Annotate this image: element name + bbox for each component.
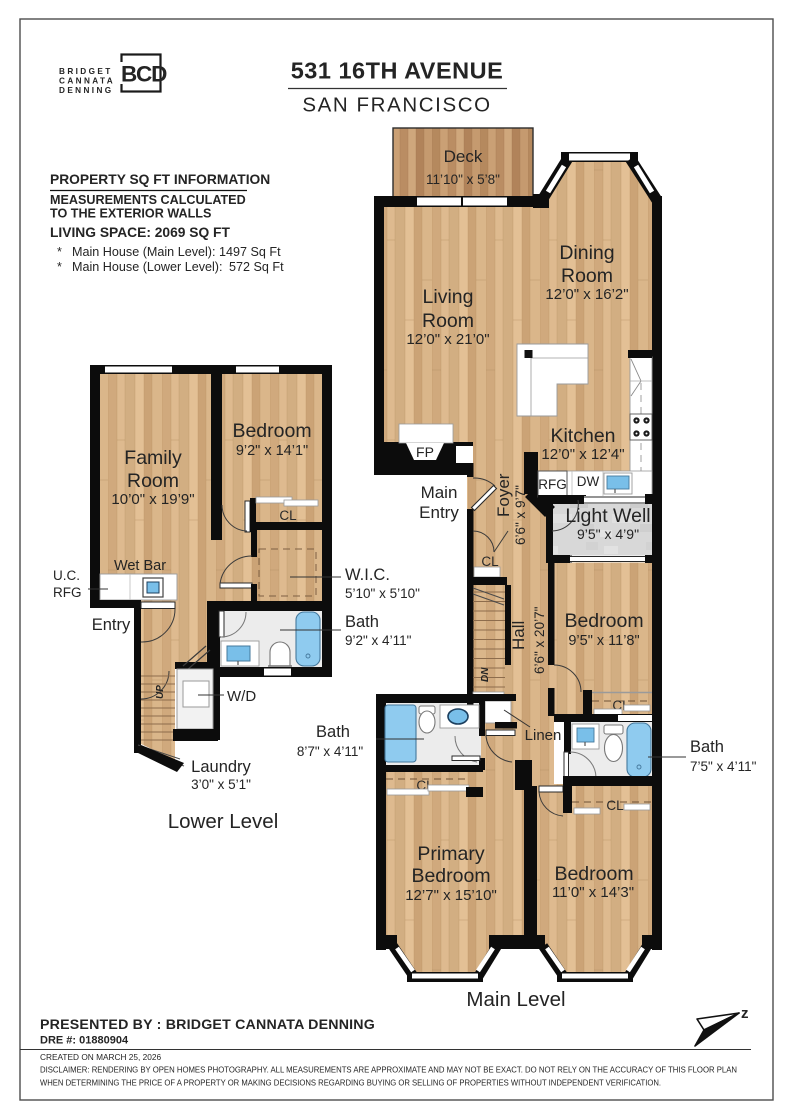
svg-text:*: * bbox=[57, 245, 62, 259]
svg-text:SAN FRANCISCO: SAN FRANCISCO bbox=[302, 94, 491, 117]
svg-text:DISCLAIMER: RENDERING BY OPEN: DISCLAIMER: RENDERING BY OPEN HOMES PHOT… bbox=[40, 1065, 737, 1075]
svg-text:12’0" x 21’0": 12’0" x 21’0" bbox=[406, 331, 489, 348]
svg-text:CANNATA: CANNATA bbox=[59, 77, 115, 86]
svg-text:PRESENTED BY : BRIDGET CANNATA: PRESENTED BY : BRIDGET CANNATA DENNING bbox=[40, 1017, 375, 1033]
svg-text:1497 Sq Ft: 1497 Sq Ft bbox=[219, 245, 281, 259]
svg-text:Linen: Linen bbox=[525, 727, 562, 744]
svg-text:10’0" x 19’9": 10’0" x 19’9" bbox=[111, 491, 194, 508]
svg-text:Laundry: Laundry bbox=[191, 758, 251, 776]
svg-text:BRIDGET: BRIDGET bbox=[59, 67, 113, 76]
svg-text:Room: Room bbox=[561, 265, 613, 287]
svg-text:RFG: RFG bbox=[538, 477, 567, 492]
svg-text:CREATED ON MARCH 25, 2026: CREATED ON MARCH 25, 2026 bbox=[40, 1052, 161, 1062]
svg-text:MEASUREMENTS CALCULATED: MEASUREMENTS CALCULATED bbox=[50, 193, 246, 207]
svg-text:Wet Bar: Wet Bar bbox=[114, 558, 166, 574]
svg-text:Kitchen: Kitchen bbox=[550, 425, 615, 447]
svg-text:572 Sq Ft: 572 Sq Ft bbox=[229, 260, 284, 274]
svg-text:DENNING: DENNING bbox=[59, 86, 114, 95]
svg-text:7’5" x 4’11": 7’5" x 4’11" bbox=[690, 759, 757, 774]
svg-text:Bedroom: Bedroom bbox=[411, 865, 490, 887]
svg-text:Bath: Bath bbox=[345, 613, 379, 631]
svg-text:TO THE EXTERIOR WALLS: TO THE EXTERIOR WALLS bbox=[50, 207, 211, 221]
svg-text:Bedroom: Bedroom bbox=[232, 420, 311, 442]
svg-text:CL: CL bbox=[279, 508, 297, 523]
svg-text:Main House (Main Level):: Main House (Main Level): bbox=[72, 245, 216, 259]
svg-text:PROPERTY SQ FT INFORMATION: PROPERTY SQ FT INFORMATION bbox=[50, 172, 270, 187]
svg-text:Living: Living bbox=[423, 286, 474, 308]
svg-text:W.I.C.: W.I.C. bbox=[345, 566, 390, 584]
svg-text:Family: Family bbox=[124, 447, 182, 469]
svg-text:Bedroom: Bedroom bbox=[564, 610, 643, 632]
svg-text:6’6" x 9’7": 6’6" x 9’7" bbox=[513, 485, 528, 545]
svg-text:Main: Main bbox=[421, 483, 458, 502]
svg-text:Deck: Deck bbox=[444, 147, 483, 166]
svg-text:11’10" x 5’8": 11’10" x 5’8" bbox=[426, 172, 500, 187]
svg-text:6’6" x 20’7": 6’6" x 20’7" bbox=[532, 606, 547, 674]
svg-text:WHEN DETERMINING THE PRICE OF: WHEN DETERMINING THE PRICE OF A PROPERTY… bbox=[40, 1078, 661, 1088]
svg-text:5’10" x 5’10": 5’10" x 5’10" bbox=[345, 586, 420, 601]
svg-text:DW: DW bbox=[577, 474, 600, 489]
svg-text:Dining: Dining bbox=[559, 242, 614, 264]
svg-text:BCD: BCD bbox=[121, 62, 167, 87]
svg-text:DN: DN bbox=[480, 667, 491, 682]
svg-text:9’5" x 11’8": 9’5" x 11’8" bbox=[568, 633, 639, 649]
svg-text:Lower Level: Lower Level bbox=[168, 810, 279, 833]
svg-text:9’5" x 4’9": 9’5" x 4’9" bbox=[577, 526, 639, 542]
svg-text:9’2" x 4’11": 9’2" x 4’11" bbox=[345, 633, 412, 648]
svg-text:*: * bbox=[57, 260, 62, 274]
svg-text:Primary: Primary bbox=[417, 843, 484, 865]
svg-text:Light Well: Light Well bbox=[565, 505, 650, 527]
svg-text:Bath: Bath bbox=[316, 723, 350, 741]
svg-text:W/D: W/D bbox=[227, 688, 256, 705]
svg-text:RFG: RFG bbox=[53, 585, 82, 600]
svg-text:DRE #: 01880904: DRE #: 01880904 bbox=[40, 1035, 129, 1047]
svg-text:Main Level: Main Level bbox=[466, 988, 565, 1011]
svg-text:Bath: Bath bbox=[690, 738, 724, 756]
svg-text:Bedroom: Bedroom bbox=[554, 863, 633, 885]
svg-text:11’0" x 14’3": 11’0" x 14’3" bbox=[552, 884, 634, 901]
svg-text:UP: UP bbox=[155, 685, 166, 699]
svg-text:Hall: Hall bbox=[509, 621, 528, 650]
svg-text:Entry: Entry bbox=[92, 616, 131, 634]
svg-text:12’0" x 16’2": 12’0" x 16’2" bbox=[545, 286, 628, 303]
svg-text:12’7" x 15’10": 12’7" x 15’10" bbox=[405, 887, 497, 904]
svg-text:Main House (Lower Level):: Main House (Lower Level): bbox=[72, 260, 223, 274]
svg-text:CL: CL bbox=[606, 798, 624, 813]
svg-text:12’0" x 12’4": 12’0" x 12’4" bbox=[541, 446, 624, 463]
svg-text:8’7" x 4’11": 8’7" x 4’11" bbox=[297, 744, 364, 759]
svg-text:Room: Room bbox=[422, 310, 474, 332]
svg-text:3’0" x 5’1": 3’0" x 5’1" bbox=[191, 777, 251, 792]
svg-text:LIVING SPACE: 2069 SQ FT: LIVING SPACE: 2069 SQ FT bbox=[50, 225, 230, 240]
svg-text:FP: FP bbox=[416, 444, 434, 460]
svg-text:Foyer: Foyer bbox=[494, 473, 513, 517]
svg-text:U.C.: U.C. bbox=[53, 568, 80, 583]
svg-text:Entry: Entry bbox=[419, 503, 459, 522]
svg-text:Room: Room bbox=[127, 470, 179, 492]
svg-text:9’2" x 14’1": 9’2" x 14’1" bbox=[236, 443, 308, 459]
svg-text:z: z bbox=[741, 1005, 749, 1022]
svg-text:531 16TH AVENUE: 531 16TH AVENUE bbox=[291, 58, 504, 84]
